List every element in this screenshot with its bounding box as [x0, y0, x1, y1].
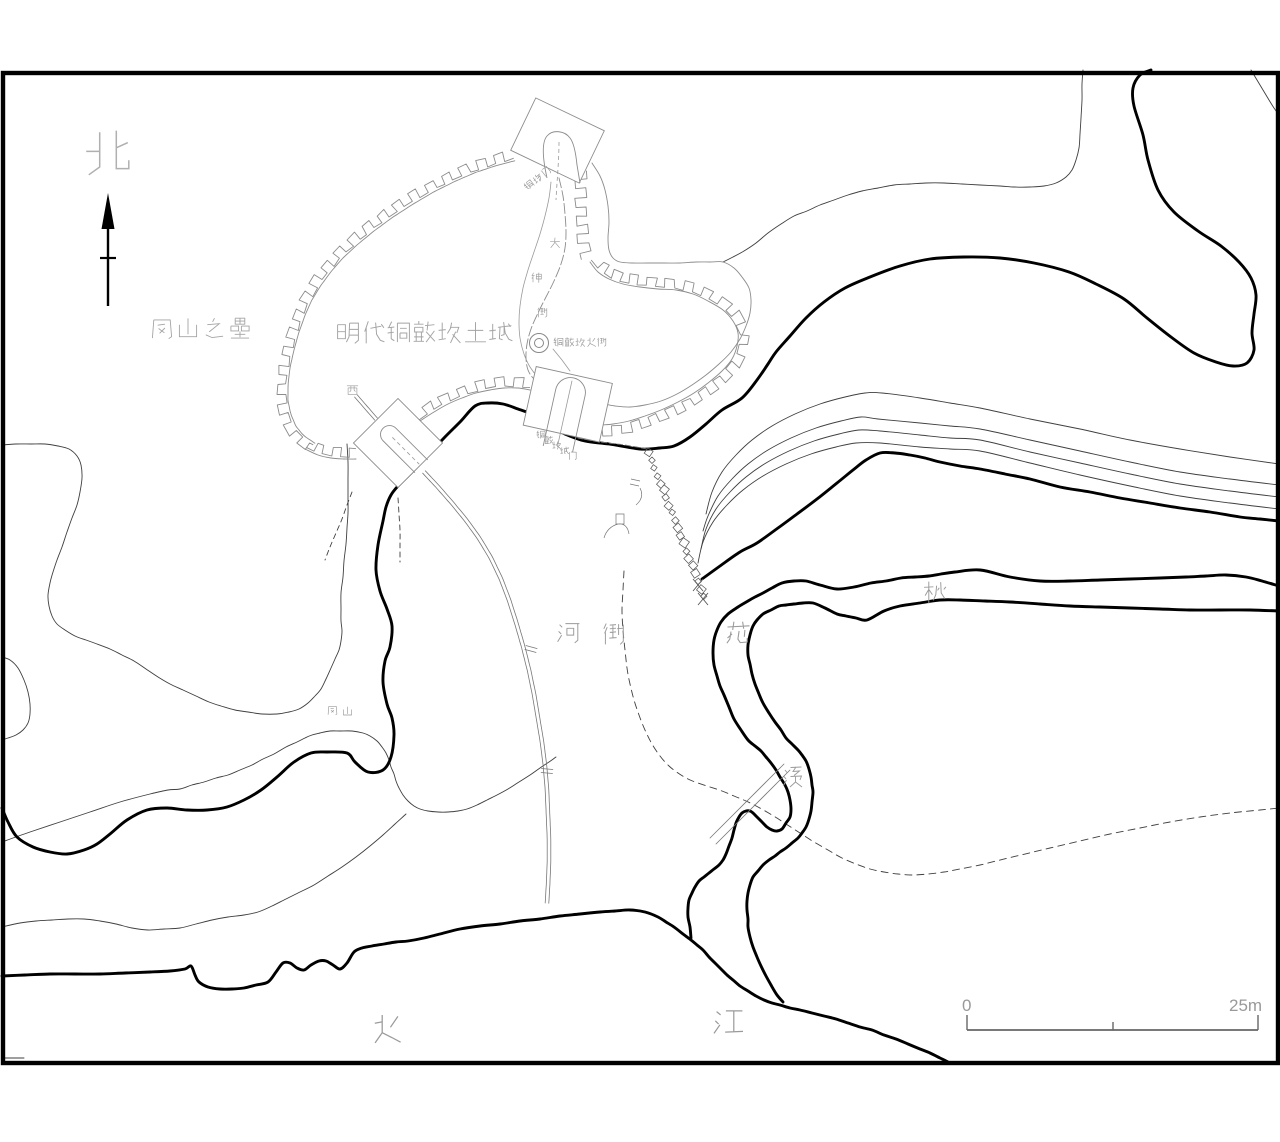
svg-text:0: 0 — [962, 996, 971, 1015]
svg-text:25m: 25m — [1229, 996, 1262, 1015]
